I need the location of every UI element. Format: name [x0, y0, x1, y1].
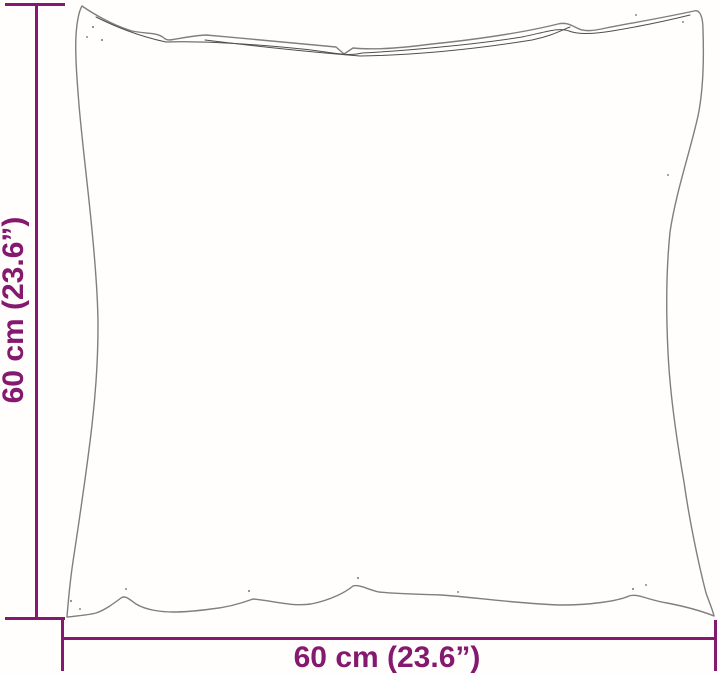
height-dimension-top-tick — [5, 3, 65, 6]
stitch-dots — [70, 14, 684, 610]
pillow-illustration — [0, 0, 720, 674]
height-dimension-label: 60 cm (23.6”) — [0, 217, 29, 404]
height-dimension-line — [35, 3, 38, 620]
product-dimension-diagram: 60 cm (23.6”) 60 cm (23.6”) — [0, 0, 720, 674]
width-dimension-line — [61, 637, 717, 640]
height-dimension-bottom-tick — [5, 617, 65, 620]
width-dimension-label: 60 cm (23.6”) — [294, 643, 481, 673]
width-dimension-right-tick — [714, 620, 717, 671]
width-dimension-left-tick — [61, 620, 64, 671]
pillow-outline — [67, 6, 714, 617]
